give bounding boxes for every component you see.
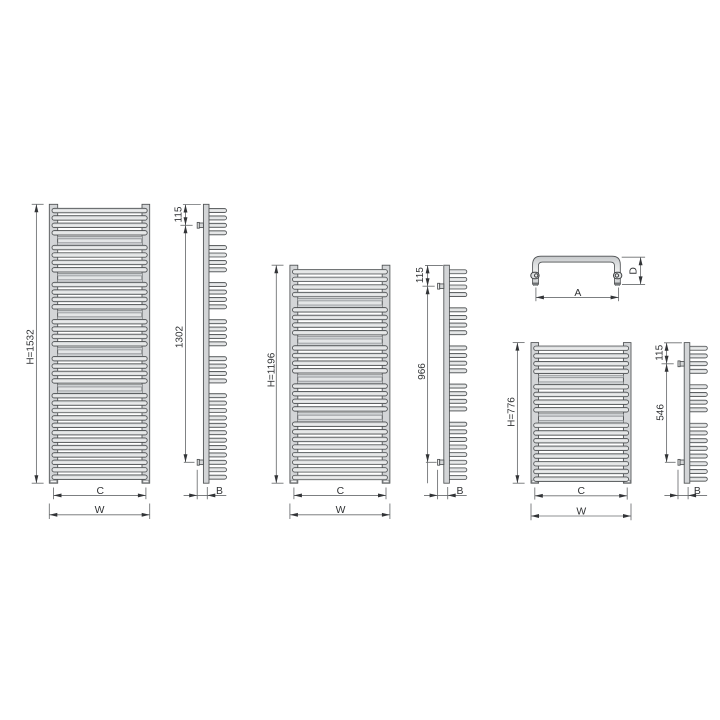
svg-text:A: A bbox=[574, 288, 581, 299]
svg-text:H=1196: H=1196 bbox=[266, 352, 277, 387]
svg-text:C: C bbox=[96, 486, 104, 497]
svg-text:W: W bbox=[336, 505, 346, 516]
svg-text:546: 546 bbox=[656, 404, 667, 421]
svg-text:W: W bbox=[576, 506, 586, 517]
svg-text:C: C bbox=[578, 486, 586, 497]
svg-text:B: B bbox=[216, 486, 223, 497]
svg-text:B: B bbox=[694, 486, 701, 497]
svg-text:1302: 1302 bbox=[175, 325, 186, 348]
svg-text:W: W bbox=[95, 505, 105, 516]
svg-text:D: D bbox=[629, 267, 640, 275]
svg-text:H=1532: H=1532 bbox=[25, 329, 36, 365]
svg-text:115: 115 bbox=[415, 267, 426, 283]
svg-text:115: 115 bbox=[655, 344, 666, 360]
svg-text:H=776: H=776 bbox=[507, 397, 518, 427]
svg-text:966: 966 bbox=[417, 363, 428, 380]
svg-text:C: C bbox=[337, 486, 345, 497]
svg-text:B: B bbox=[457, 486, 464, 497]
svg-text:115: 115 bbox=[174, 206, 185, 222]
